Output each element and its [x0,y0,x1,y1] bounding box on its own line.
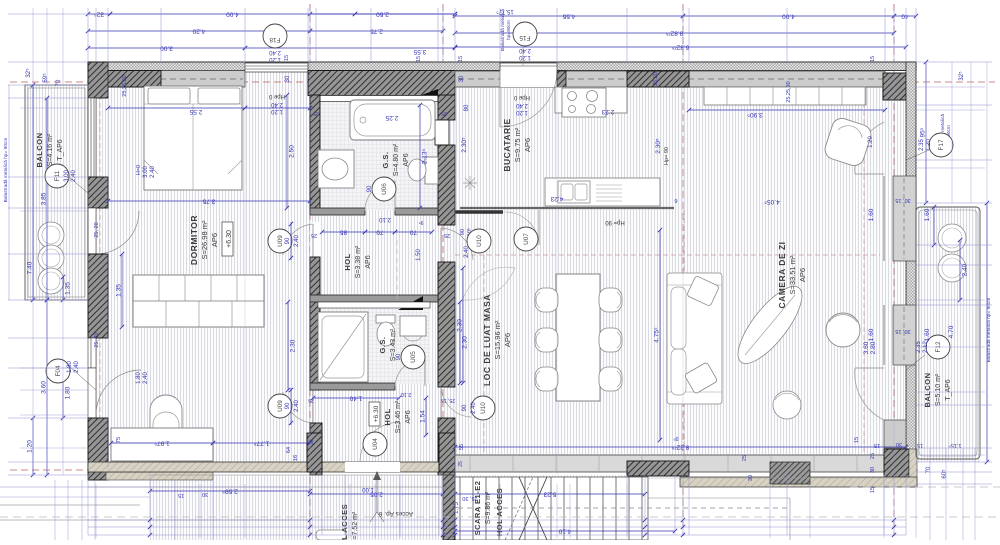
svg-text:15: 15 [416,56,422,62]
svg-text:15: 15 [284,55,290,61]
svg-text:1.20: 1.20 [516,109,528,115]
svg-text:2.40: 2.40 [74,361,80,373]
svg-text:1.20: 1.20 [926,139,932,151]
svg-text:S=26.98 m²: S=26.98 m² [200,220,209,259]
svg-text:3.60: 3.60 [863,341,870,354]
svg-text:2.30: 2.30 [462,336,469,349]
svg-text:30: 30 [748,475,754,481]
svg-text:2.40: 2.40 [294,235,300,247]
svg-text:25,25,30: 25,25,30 [786,81,792,102]
svg-text:1.40: 1.40 [349,395,362,402]
svg-text:3.00: 3.00 [160,45,173,52]
svg-text:2.40: 2.40 [71,170,77,182]
svg-text:1.80: 1.80 [67,361,73,373]
svg-text:15.77⁵: 15.77⁵ [496,8,514,15]
svg-text:1.60: 1.60 [868,208,875,221]
svg-text:1.77⁵: 1.77⁵ [254,440,270,447]
svg-text:30, 15: 30, 15 [895,328,910,334]
svg-text:G.S.: G.S. [381,151,390,168]
svg-text:U04: U04 [372,438,379,450]
svg-text:4.00: 4.00 [226,11,239,18]
svg-text:F15: F15 [519,34,530,41]
svg-text:90: 90 [396,353,402,360]
svg-text:1.20: 1.20 [868,136,874,148]
svg-text:HOL: HOL [383,408,392,425]
svg-text:15: 15 [917,442,923,448]
svg-text:16: 16 [293,455,299,461]
svg-text:F04: F04 [55,365,62,376]
svg-text:15: 15 [870,487,876,493]
svg-text:30: 30 [459,75,465,82]
svg-text:3.00: 3.00 [143,166,149,178]
svg-text:S=9.75 m²: S=9.75 m² [513,127,522,162]
svg-text:30: 30 [870,467,876,473]
svg-text:1.35: 1.35 [116,284,123,297]
svg-text:15: 15 [874,442,880,448]
svg-text:CAMERA DE ZI: CAMERA DE ZI [777,241,787,308]
svg-text:25, 20: 25, 20 [94,222,100,237]
svg-text:25, 15: 25, 15 [441,397,455,403]
svg-text:1.60: 1.60 [868,328,875,341]
svg-text:4.75⁵: 4.75⁵ [654,327,661,343]
svg-text:U09: U09 [277,400,284,412]
svg-text:2.13⁵: 2.13⁵ [422,149,429,165]
svg-text:Hpe 0: Hpe 0 [268,93,285,99]
svg-text:5.23: 5.23 [543,491,556,498]
svg-text:2.25: 2.25 [385,114,398,121]
svg-text:G.S.: G.S. [378,336,387,353]
svg-text:90: 90 [285,402,291,409]
svg-text:3.60: 3.60 [41,381,48,394]
svg-text:2.23: 2.23 [601,108,614,115]
svg-text:1.50: 1.50 [416,249,422,261]
svg-text:4.23: 4.23 [550,195,563,202]
svg-text:2.30: 2.30 [290,339,297,352]
svg-text:U10: U10 [476,235,483,247]
svg-text:25: 25 [870,453,876,459]
svg-text:60⁵: 60⁵ [941,469,948,479]
svg-text:+6.30: +6.30 [226,230,233,248]
svg-text:BUCATARIE: BUCATARIE [502,118,512,171]
svg-text:AP6: AP6 [210,233,219,247]
svg-text:2.50: 2.50 [289,145,296,158]
svg-text:7.40: 7.40 [27,261,34,274]
svg-text:55: 55 [459,444,465,450]
svg-text:1.35: 1.35 [65,282,72,295]
svg-text:40: 40 [901,13,909,20]
svg-text:4.10: 4.10 [558,528,571,535]
svg-text:15, 30: 15, 30 [462,495,477,501]
svg-text:8.82²⁵: 8.82²⁵ [665,30,683,37]
svg-text:25: 25 [308,397,314,403]
svg-text:AP6: AP6 [503,333,512,347]
svg-text:6: 6 [674,197,677,203]
svg-text:3.90⁵: 3.90⁵ [747,111,763,118]
svg-text:2.40: 2.40 [150,166,156,178]
svg-text:15: 15 [854,437,860,443]
svg-text:1.60: 1.60 [924,328,931,341]
svg-text:2.30⁵: 2.30⁵ [655,138,662,154]
svg-text:15: 15 [870,56,876,62]
svg-text:S=4.80 m²: S=4.80 m² [393,143,400,176]
svg-text:HOL ACCES: HOL ACCES [340,504,349,540]
svg-text:2.59⁵: 2.59⁵ [222,488,238,495]
svg-text:2.12: 2.12 [923,341,929,353]
svg-text:2.35: 2.35 [916,341,922,353]
svg-text:2.40: 2.40 [143,372,149,384]
svg-text:4.55: 4.55 [562,13,575,20]
svg-text:4.20: 4.20 [192,28,205,35]
svg-text:70: 70 [410,229,418,236]
svg-text:AP6: AP6 [365,255,372,268]
svg-text:2.10: 2.10 [401,391,412,397]
svg-text:75: 75 [116,437,122,443]
svg-text:90: 90 [285,237,291,244]
svg-text:1.20: 1.20 [271,108,283,114]
svg-text:25: 25 [441,110,447,116]
svg-text:T_AP6: T_AP6 [945,379,952,401]
svg-text:S=9.86 m²: S=9.86 m² [485,491,492,524]
svg-text:AP6: AP6 [798,268,807,282]
svg-text:1.60: 1.60 [924,208,931,221]
svg-text:25,20: 25,20 [653,72,659,86]
svg-text:64: 64 [286,447,292,453]
svg-text:32⁵: 32⁵ [958,71,965,81]
svg-text:Balustradă metalică hp= 90cm: Balustradă metalică hp= 90cm [986,298,992,363]
svg-text:25: 25 [742,455,748,461]
svg-text:80: 80 [464,104,470,111]
svg-text:2.40: 2.40 [294,400,300,412]
svg-text:4.05⁵: 4.05⁵ [764,198,780,205]
svg-text:32⁵: 32⁵ [94,11,104,18]
svg-text:6.82²⁵: 6.82²⁵ [671,44,689,51]
svg-text:1.54: 1.54 [420,410,427,423]
svg-text:F11: F11 [54,170,61,181]
svg-text:32⁵: 32⁵ [25,68,32,78]
svg-text:1.80: 1.80 [136,372,142,384]
svg-text:F18: F18 [269,36,280,43]
svg-text:1.00: 1.00 [362,486,374,492]
svg-text:9⁵: 9⁵ [419,219,424,225]
svg-text:2.40: 2.40 [519,47,531,53]
svg-text:1.20: 1.20 [27,440,34,453]
svg-text:3.85: 3.85 [41,192,48,205]
svg-text:Acces Ap. 6: Acces Ap. 6 [378,510,413,517]
svg-text:2.35: 2.35 [919,139,925,151]
svg-text:85: 85 [340,229,348,236]
svg-text:2.10: 2.10 [379,216,391,222]
svg-text:AP6: AP6 [523,138,532,152]
svg-text:LOC DE LUAT MASA: LOC DE LUAT MASA [482,294,492,386]
svg-text:30: 30 [896,441,902,447]
svg-text:T_AP6: T_AP6 [57,139,64,161]
svg-text:Hp= 90: Hp= 90 [605,219,625,225]
svg-text:2.80: 2.80 [870,341,877,354]
svg-text:F12: F12 [935,341,942,352]
svg-text:4.00: 4.00 [782,13,795,20]
svg-text:3.75: 3.75 [202,198,215,205]
svg-text:1.97⁵: 1.97⁵ [154,440,170,447]
svg-text:30, 15: 30, 15 [895,197,910,203]
svg-text:90: 90 [462,404,468,411]
svg-text:U06: U06 [381,183,388,195]
svg-text:1.20: 1.20 [269,56,281,62]
svg-text:U05: U05 [410,351,417,363]
svg-text:2.50: 2.50 [376,11,389,18]
svg-text:Hp= 90: Hp= 90 [664,147,670,165]
svg-text:90: 90 [367,185,373,192]
svg-text:2.55: 2.55 [189,108,202,115]
svg-text:U09: U09 [277,235,284,247]
svg-text:F17: F17 [938,139,945,150]
svg-text:25: 25 [311,232,317,238]
svg-text:2.30: 2.30 [457,319,464,332]
svg-text:25, 20: 25, 20 [94,332,100,347]
svg-text:S=4.16 m²: S=4.16 m² [47,133,54,166]
svg-text:S=5.10 m²: S=5.10 m² [935,373,942,406]
svg-text:hp=90cm: hp=90cm [506,20,512,40]
svg-text:8.22²⁵: 8.22²⁵ [671,444,689,451]
svg-text:15: 15 [178,492,184,498]
svg-text:U10: U10 [480,402,487,414]
svg-text:U07: U07 [523,233,530,245]
svg-text:Balustradă metalică hp= 90cm: Balustradă metalică hp= 90cm [3,138,9,203]
svg-text:2.40: 2.40 [464,246,470,258]
svg-text:BALCON: BALCON [923,372,932,407]
svg-text:9⁵: 9⁵ [673,435,678,442]
svg-text:S=7.52 m²: S=7.52 m² [352,511,359,540]
svg-text:4.70: 4.70 [948,325,955,338]
svg-text:2.30⁵: 2.30⁵ [461,137,468,153]
svg-text:1.20: 1.20 [519,54,531,60]
svg-text:30: 30 [202,491,208,497]
svg-text:HOL: HOL [343,253,352,270]
svg-text:25: 25 [444,232,450,238]
svg-text:15: 15 [458,56,464,62]
svg-text:2.40: 2.40 [516,102,528,108]
svg-text:90: 90 [460,229,466,235]
svg-text:AP6: AP6 [405,410,412,423]
svg-text:59⁵: 59⁵ [42,73,49,83]
svg-text:25: 25 [313,110,319,116]
svg-text:S=3.38 m²: S=3.38 m² [355,245,362,278]
svg-text:BALCON: BALCON [35,132,44,167]
svg-text:70: 70 [376,229,384,236]
svg-text:Hpe 0: Hpe 0 [513,94,530,100]
svg-text:25,25,20: 25,25,20 [122,75,128,96]
svg-text:95⁵: 95⁵ [920,127,927,137]
svg-text:DORMITOR: DORMITOR [189,215,199,265]
svg-text:2.40: 2.40 [271,101,283,107]
svg-text:30: 30 [285,75,291,82]
svg-text:S=15.96 m²: S=15.96 m² [493,320,502,359]
svg-text:+6.30: +6.30 [373,405,380,422]
svg-text:AP6: AP6 [403,153,410,166]
svg-text:1.80: 1.80 [65,386,72,399]
svg-text:25: 25 [458,461,464,467]
svg-text:3.55: 3.55 [413,48,426,55]
svg-text:2.75: 2.75 [370,28,383,35]
svg-text:HOL ACCES: HOL ACCES [495,488,504,536]
svg-text:S=33.51 m²: S=33.51 m² [788,255,797,294]
svg-text:H=0: H=0 [136,165,142,175]
svg-text:2.40: 2.40 [471,402,477,414]
svg-text:2.40: 2.40 [269,49,281,55]
svg-text:3.00: 3.00 [64,170,70,182]
svg-text:S=3.46 m²: S=3.46 m² [395,400,402,433]
